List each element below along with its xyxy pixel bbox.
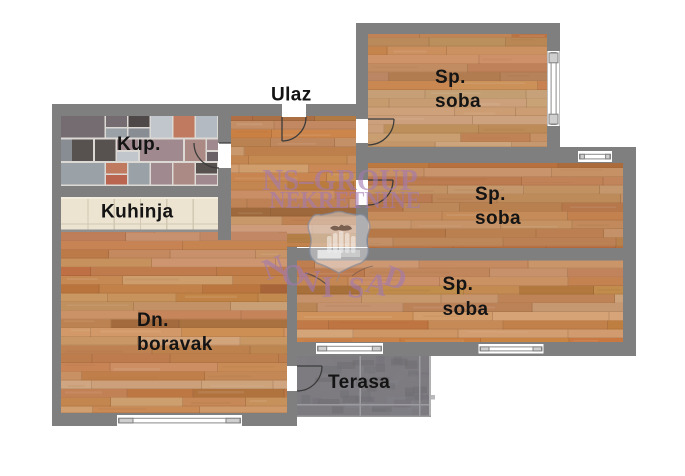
svg-text:NEKRETNINE: NEKRETNINE: [269, 187, 421, 214]
svg-text:I: I: [321, 271, 334, 304]
svg-text:soba: soba: [435, 91, 481, 112]
svg-text:Ulaz: Ulaz: [271, 85, 312, 106]
svg-text:Sp.: Sp.: [443, 274, 474, 295]
svg-text:soba: soba: [475, 208, 521, 229]
svg-text:Kuhinja: Kuhinja: [101, 202, 173, 223]
svg-text:soba: soba: [443, 299, 489, 320]
svg-text:Sp.: Sp.: [435, 67, 466, 88]
svg-text:Terasa: Terasa: [328, 372, 390, 393]
svg-text:boravak: boravak: [137, 334, 213, 355]
svg-text:Kup.: Kup.: [117, 134, 161, 155]
svg-text:Sp.: Sp.: [475, 184, 506, 205]
svg-text:S: S: [346, 271, 366, 306]
svg-text:Dn.: Dn.: [137, 310, 169, 331]
